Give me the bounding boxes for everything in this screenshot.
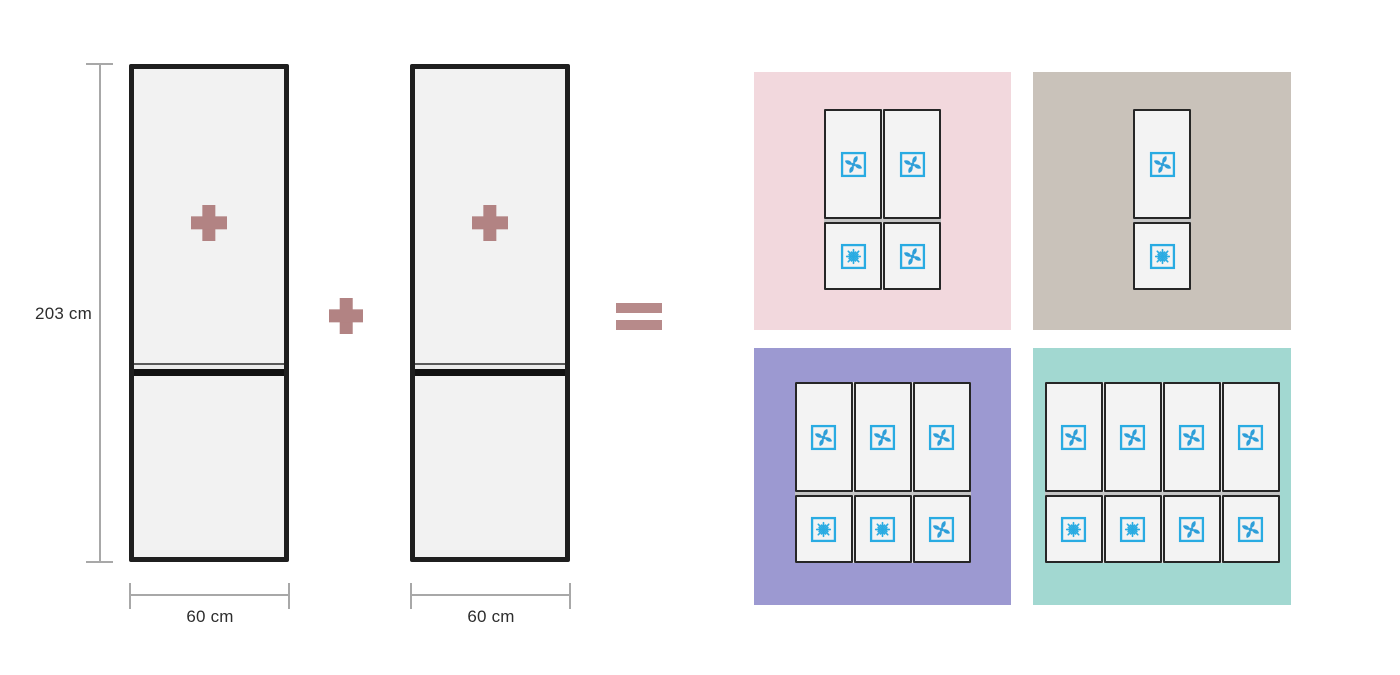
fridge-1-top-compartment <box>134 69 284 365</box>
panel-bottom-right <box>1033 348 1291 605</box>
fan-icon <box>1237 516 1264 543</box>
equals-operator-icon <box>616 303 662 330</box>
fridge-door <box>824 222 882 290</box>
fridge-door <box>1163 382 1221 492</box>
fridge-door <box>913 382 971 492</box>
fan-icon <box>1237 424 1264 451</box>
width-measure-cap-right-1 <box>288 583 290 609</box>
width-measure-line-1 <box>130 594 290 596</box>
fridge-1-bottom-compartment <box>134 376 284 557</box>
height-measure-cap-top <box>86 63 113 65</box>
unit-top-row <box>795 382 971 492</box>
fridge-door <box>1104 382 1162 492</box>
unit-bottom-row <box>1045 495 1280 563</box>
panel-top-left <box>754 72 1011 330</box>
fan-icon <box>1149 151 1176 178</box>
width-measure-cap-left-1 <box>129 583 131 609</box>
unit-bottom-row <box>795 495 971 563</box>
unit-top-row <box>1133 109 1191 219</box>
fridge-unit <box>824 109 941 290</box>
fan-icon <box>1178 424 1205 451</box>
fan-icon <box>899 151 926 178</box>
fan-icon <box>928 424 955 451</box>
width-label-2: 60 cm <box>411 607 571 627</box>
unit-bottom-row <box>824 222 941 290</box>
fan-icon <box>1119 424 1146 451</box>
fridge-door <box>1222 495 1280 563</box>
fan-icon <box>840 151 867 178</box>
width-measure-cap-left-2 <box>410 583 412 609</box>
fridge-1 <box>129 64 289 562</box>
fridge-door <box>795 495 853 563</box>
height-measure-cap-bottom <box>86 561 113 563</box>
fan-icon <box>810 424 837 451</box>
snowflake-icon <box>869 516 896 543</box>
fridge-2-divider-band <box>415 369 565 376</box>
fridge-2 <box>410 64 570 562</box>
unit-top-row <box>824 109 941 219</box>
fridge-door <box>1133 222 1191 290</box>
panel-top-right <box>1033 72 1291 330</box>
width-label-1: 60 cm <box>130 607 290 627</box>
snowflake-icon <box>1060 516 1087 543</box>
fridge-2-bottom-compartment <box>415 376 565 557</box>
width-measure-line-2 <box>411 594 571 596</box>
plus-icon <box>472 205 508 241</box>
fridge-door <box>854 382 912 492</box>
fridge-door <box>1104 495 1162 563</box>
fridge-door <box>854 495 912 563</box>
fan-icon <box>899 243 926 270</box>
plus-operator-icon <box>329 298 363 334</box>
fridge-1-divider-band <box>134 369 284 376</box>
fridge-door <box>1045 495 1103 563</box>
fan-icon <box>1060 424 1087 451</box>
fridge-door <box>913 495 971 563</box>
fridge-door <box>795 382 853 492</box>
fan-icon <box>869 424 896 451</box>
fridge-door <box>824 109 882 219</box>
unit-bottom-row <box>1133 222 1191 290</box>
height-label: 203 cm <box>18 304 92 324</box>
unit-top-row <box>1045 382 1280 492</box>
snowflake-icon <box>1149 243 1176 270</box>
plus-icon <box>191 205 227 241</box>
fridge-door <box>1163 495 1221 563</box>
fridge-2-top-compartment <box>415 69 565 365</box>
height-measure-line <box>99 64 101 562</box>
fridge-door <box>1222 382 1280 492</box>
diagram-canvas: 203 cm 60 cm 60 cm <box>0 0 1400 675</box>
fan-icon <box>928 516 955 543</box>
fridge-door <box>1045 382 1103 492</box>
snowflake-icon <box>810 516 837 543</box>
fridge-unit <box>795 382 971 563</box>
fridge-unit <box>1133 109 1191 290</box>
snowflake-icon <box>840 243 867 270</box>
fridge-door <box>1133 109 1191 219</box>
width-measure-cap-right-2 <box>569 583 571 609</box>
fan-icon <box>1178 516 1205 543</box>
snowflake-icon <box>1119 516 1146 543</box>
fridge-unit <box>1045 382 1280 563</box>
fridge-door <box>883 222 941 290</box>
fridge-door <box>883 109 941 219</box>
panel-bottom-left <box>754 348 1011 605</box>
